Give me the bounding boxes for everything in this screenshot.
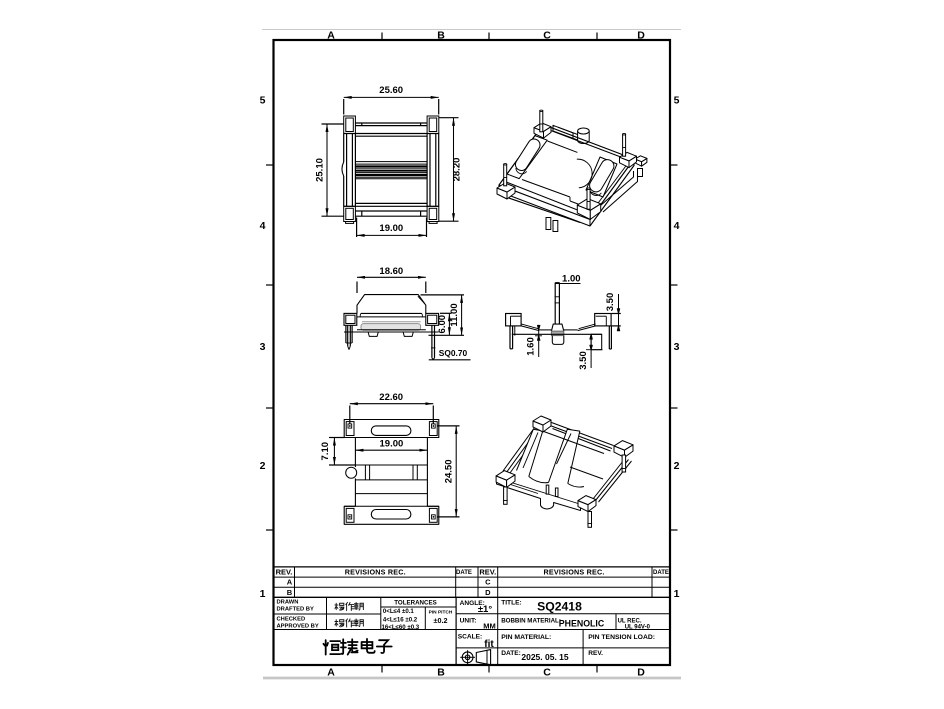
svg-text:BOBBIN MATERIAL:: BOBBIN MATERIAL: [501, 617, 561, 624]
svg-text:PIN MATERIAL:: PIN MATERIAL: [501, 634, 551, 641]
svg-text:SQ0.70: SQ0.70 [439, 348, 468, 358]
svg-text:TOLERANCES: TOLERANCES [394, 599, 437, 606]
svg-text:SCALE:: SCALE: [458, 633, 483, 640]
svg-text:22.60: 22.60 [379, 392, 403, 403]
svg-text:B: B [437, 30, 445, 42]
svg-text:DRAFTED BY: DRAFTED BY [277, 606, 314, 612]
svg-text:DRAWN: DRAWN [277, 599, 299, 605]
svg-text:19.00: 19.00 [380, 439, 404, 450]
svg-text:5: 5 [260, 95, 266, 107]
svg-text:A: A [327, 667, 335, 679]
svg-text:DATE: DATE [653, 570, 669, 576]
svg-text:SQ2418: SQ2418 [537, 600, 582, 614]
svg-text:MM: MM [483, 622, 496, 631]
svg-text:11.00: 11.00 [449, 303, 460, 326]
svg-text:DATE: DATE [456, 570, 472, 576]
svg-text:B: B [437, 667, 445, 679]
svg-text:DATE:: DATE: [501, 650, 521, 657]
svg-text:6.00: 6.00 [437, 315, 448, 334]
svg-text:PHENOLIC: PHENOLIC [559, 618, 605, 628]
svg-text:APPROVED BY: APPROVED BY [277, 623, 319, 629]
svg-text:24.50: 24.50 [444, 460, 455, 484]
svg-text:4: 4 [260, 220, 266, 232]
svg-text:B: B [287, 588, 293, 597]
svg-text:REVISIONS REC.: REVISIONS REC. [543, 568, 604, 577]
svg-text:REV.: REV. [276, 568, 293, 577]
svg-text:UNIT:: UNIT: [460, 618, 477, 625]
svg-text:1.00: 1.00 [562, 273, 581, 284]
svg-text:7.10: 7.10 [320, 442, 331, 461]
svg-text:±0.2: ±0.2 [434, 616, 448, 625]
svg-text:D: D [637, 30, 645, 42]
svg-text:3.50: 3.50 [605, 293, 616, 312]
svg-text:C: C [543, 667, 551, 679]
svg-text:1.60: 1.60 [526, 337, 537, 356]
svg-text:3: 3 [674, 341, 680, 353]
svg-text:C: C [485, 578, 491, 587]
svg-text:C: C [543, 30, 551, 42]
svg-text:REV.: REV. [479, 568, 496, 577]
svg-text:CHECKED: CHECKED [277, 617, 306, 623]
svg-text:4<L≤16 ±0.2: 4<L≤16 ±0.2 [383, 617, 418, 624]
svg-text:25.60: 25.60 [379, 85, 403, 96]
svg-text:16<L≤60 ±0.3: 16<L≤60 ±0.3 [382, 624, 420, 631]
svg-text:3: 3 [260, 341, 266, 353]
svg-text:2025. 05. 15: 2025. 05. 15 [521, 652, 569, 662]
svg-text:1: 1 [674, 588, 680, 600]
svg-text:18.60: 18.60 [379, 266, 403, 277]
svg-text:1: 1 [260, 588, 266, 600]
svg-text:PIN PITCH: PIN PITCH [429, 610, 453, 616]
svg-text:PIN TENSION LOAD:: PIN TENSION LOAD: [588, 634, 655, 641]
svg-text:19.00: 19.00 [379, 223, 403, 234]
svg-text:3.50: 3.50 [578, 351, 589, 370]
svg-text:UL 94V-0: UL 94V-0 [625, 624, 651, 630]
svg-text:2: 2 [260, 460, 266, 472]
svg-text:D: D [637, 667, 645, 679]
svg-text:4: 4 [674, 220, 680, 232]
svg-text:REVISIONS REC.: REVISIONS REC. [345, 568, 406, 577]
svg-text:fit: fit [484, 639, 494, 650]
svg-text:A: A [327, 30, 335, 42]
svg-text:0<L≤4 ±0.1: 0<L≤4 ±0.1 [383, 608, 415, 615]
svg-text:5: 5 [674, 95, 680, 107]
svg-text:REV.: REV. [588, 650, 603, 657]
svg-text:±1°: ±1° [478, 604, 492, 615]
svg-text:2: 2 [674, 460, 680, 472]
svg-text:D: D [485, 588, 491, 597]
svg-text:TITLE:: TITLE: [501, 600, 522, 607]
svg-text:28.20: 28.20 [452, 158, 463, 182]
svg-text:A: A [287, 578, 293, 587]
svg-text:25.10: 25.10 [315, 158, 326, 182]
